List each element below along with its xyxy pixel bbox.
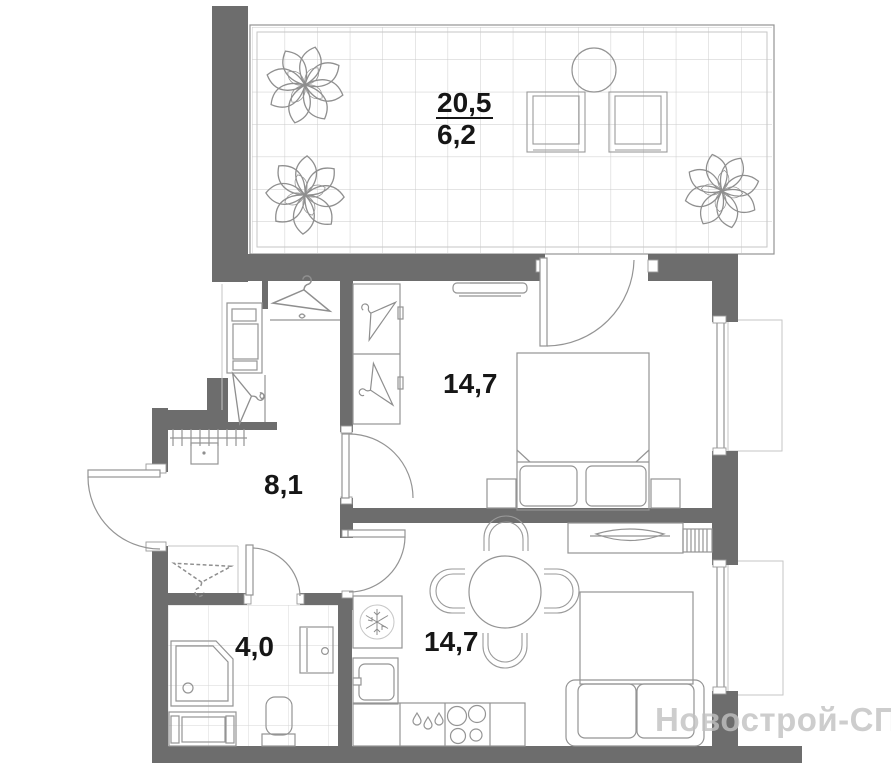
- wall: [152, 746, 802, 763]
- wall: [212, 254, 545, 281]
- apartment-floor-plan: 20,5 6,2: [0, 0, 891, 768]
- wall: [207, 378, 228, 412]
- kitchen-living-area-label: 14,7: [424, 626, 479, 657]
- hallway-area-label: 8,1: [264, 469, 303, 500]
- wall: [712, 254, 738, 322]
- balcony-tile-grid: [252, 27, 772, 253]
- door-leaf: [342, 434, 349, 498]
- door-leaf: [88, 470, 160, 477]
- door-leaf: [348, 530, 405, 537]
- wall: [712, 451, 738, 565]
- tap-icon: [353, 678, 361, 685]
- wall: [340, 278, 353, 432]
- balcony-area-label: 20,5: [437, 87, 492, 118]
- bathroom-area-label: 4,0: [235, 631, 274, 662]
- balcony-reduced-area-label: 6,2: [437, 119, 476, 150]
- wall: [212, 6, 248, 282]
- wall: [152, 410, 228, 430]
- wall: [338, 604, 352, 746]
- balcony: 20,5 6,2: [250, 25, 774, 254]
- floor-plan-drawing: 20,5 6,2: [0, 0, 891, 768]
- watermark: Новострой-СПб: [655, 701, 891, 739]
- wall: [168, 593, 247, 605]
- wall: [152, 546, 168, 748]
- door-leaf: [540, 258, 547, 346]
- bathroom-tile-grid: [168, 605, 338, 746]
- wall: [228, 422, 277, 430]
- door-leaf: [246, 545, 253, 595]
- bedroom-area-label: 14,7: [443, 368, 498, 399]
- wall: [262, 275, 268, 309]
